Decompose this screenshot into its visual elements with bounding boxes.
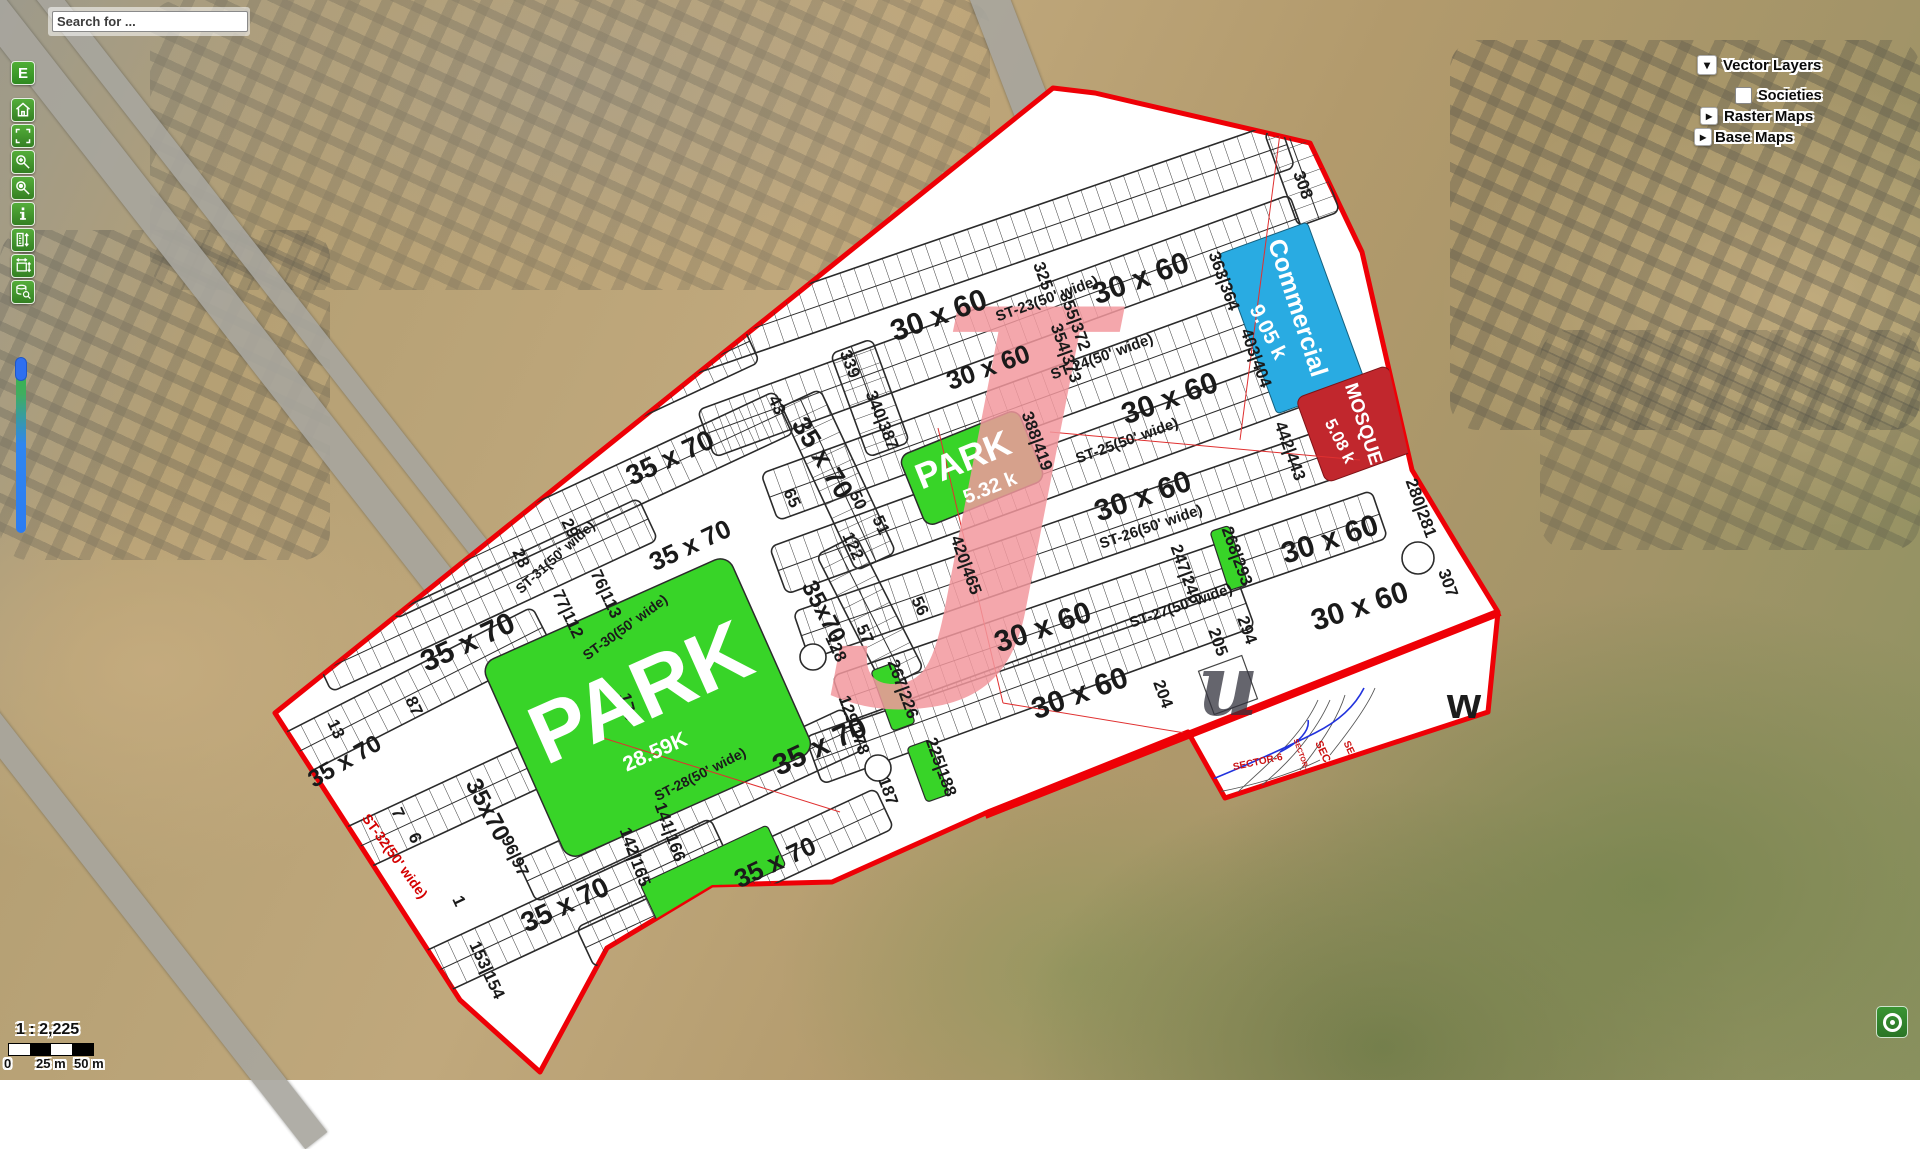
layers-group-base: ▸ Base Maps [1694, 128, 1793, 146]
satellite-map[interactable]: Juw30 x 6030 x 6030 x 6030 x 6030 x 6030… [0, 0, 1920, 1080]
zoom-in-button[interactable] [11, 150, 35, 174]
society-plan-overlay [0, 0, 1920, 1080]
attribution-button[interactable] [1876, 1006, 1908, 1038]
zoom-extent-icon [14, 127, 32, 145]
zoom-slider-handle[interactable] [15, 357, 27, 381]
search-box [48, 7, 250, 36]
societies-label: Societies [1758, 88, 1822, 104]
measure-length-button[interactable] [11, 228, 35, 252]
measure-length-icon [14, 231, 32, 249]
search-input[interactable] [52, 11, 248, 32]
database-search-icon [14, 283, 32, 301]
info-icon [14, 205, 32, 223]
identify-info-button[interactable] [11, 202, 35, 226]
zoom-slider-track[interactable] [16, 363, 26, 533]
base-maps-label: Base Maps [1715, 129, 1793, 146]
societies-checkbox[interactable] [1735, 87, 1752, 104]
scale-tick: 25 m [36, 1056, 66, 1071]
vector-layers-label: Vector Layers [1723, 57, 1821, 74]
scale-bar [8, 1043, 94, 1056]
zoom-in-icon [14, 153, 32, 171]
chevron-right-icon[interactable]: ▸ [1694, 128, 1712, 146]
edit-button-label: E [18, 65, 28, 82]
attribution-ring-icon [1883, 1013, 1902, 1032]
home-icon [14, 101, 32, 119]
query-attributes-button[interactable] [11, 280, 35, 304]
chevron-down-icon[interactable]: ▾ [1697, 55, 1717, 75]
edit-button[interactable]: E [11, 61, 35, 85]
layer-societies: Societies [1735, 87, 1822, 104]
chevron-right-icon[interactable]: ▸ [1700, 107, 1718, 125]
measure-area-icon [14, 257, 32, 275]
raster-maps-label: Raster Maps [1724, 108, 1813, 125]
zoom-slider[interactable] [15, 357, 27, 535]
scale-tick: 0 [4, 1056, 11, 1071]
scale-tick: 50 m [74, 1056, 104, 1071]
zoom-previous-button[interactable] [11, 176, 35, 200]
scale-ratio: 1 : 2,225 [16, 1021, 79, 1039]
measure-area-button[interactable] [11, 254, 35, 278]
home-button[interactable] [11, 98, 35, 122]
layers-group-vector: ▾ Vector Layers [1697, 55, 1821, 75]
zoom-extent-button[interactable] [11, 124, 35, 148]
layers-group-raster: ▸ Raster Maps [1700, 107, 1813, 125]
zoom-previous-icon [14, 179, 32, 197]
